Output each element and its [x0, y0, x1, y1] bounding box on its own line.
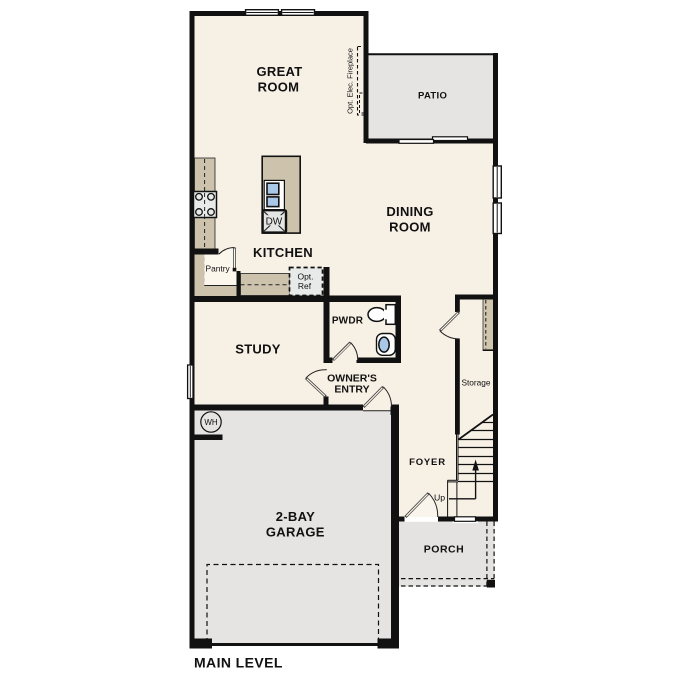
- svg-text:Up: Up: [434, 493, 445, 503]
- svg-text:ROOM: ROOM: [389, 220, 431, 235]
- svg-text:FOYER: FOYER: [409, 457, 446, 468]
- svg-text:2-BAY: 2-BAY: [276, 509, 315, 524]
- svg-text:Opt. Elec. Fireplace: Opt. Elec. Fireplace: [346, 48, 355, 114]
- svg-text:STUDY: STUDY: [235, 342, 281, 357]
- svg-text:Opt.: Opt.: [297, 272, 313, 282]
- svg-text:PORCH: PORCH: [424, 544, 464, 556]
- svg-text:ENTRY: ENTRY: [334, 384, 369, 396]
- svg-text:DW: DW: [266, 216, 283, 227]
- svg-text:Pantry: Pantry: [205, 264, 230, 274]
- svg-text:KITCHEN: KITCHEN: [253, 245, 313, 260]
- svg-text:DINING: DINING: [386, 204, 433, 219]
- svg-text:MAIN LEVEL: MAIN LEVEL: [194, 655, 283, 671]
- svg-text:Ref: Ref: [298, 281, 312, 291]
- svg-text:ROOM: ROOM: [258, 80, 300, 95]
- svg-text:Storage: Storage: [461, 378, 490, 388]
- svg-text:WH: WH: [204, 418, 218, 427]
- svg-text:PATIO: PATIO: [418, 91, 447, 102]
- svg-text:PWDR: PWDR: [332, 316, 364, 327]
- svg-text:GARAGE: GARAGE: [266, 525, 325, 540]
- svg-text:GREAT: GREAT: [256, 64, 302, 79]
